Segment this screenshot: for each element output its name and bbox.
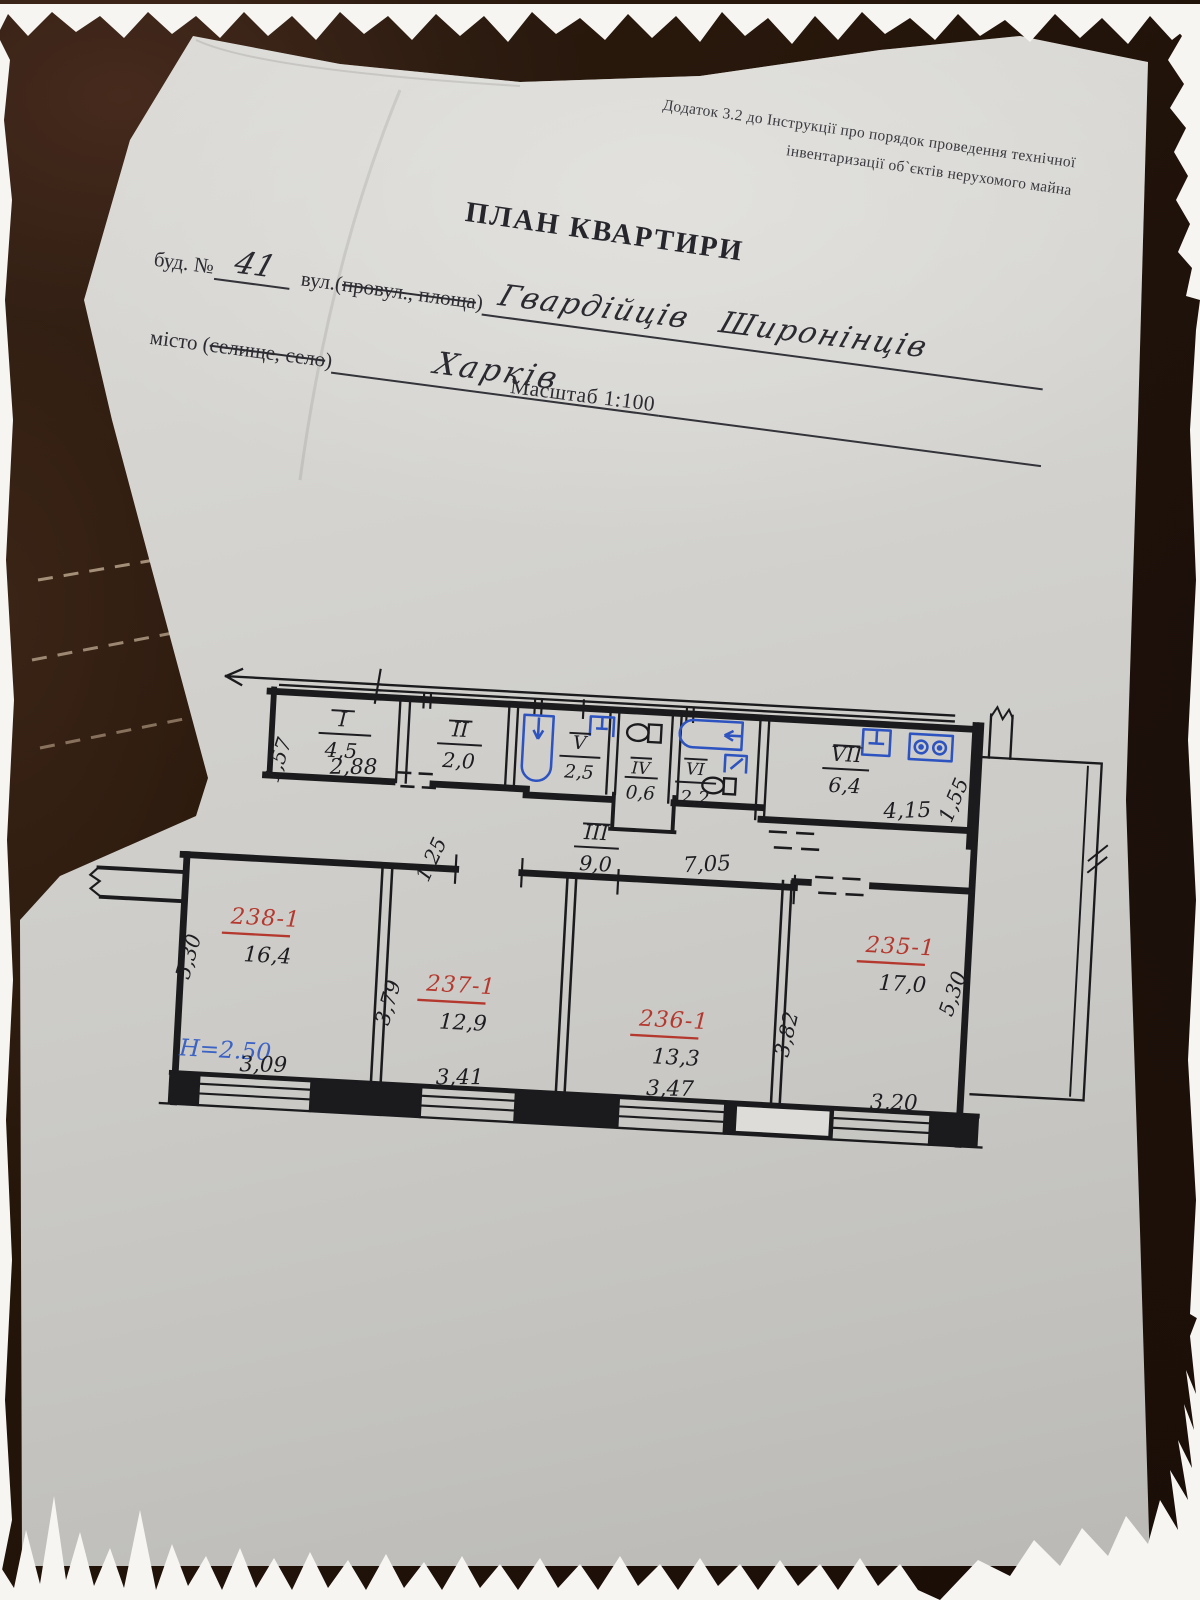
room-235-area: 17,0 [878, 971, 927, 999]
dim-r235-width: 3,20 [870, 1090, 918, 1116]
room-238-number: 238-1 [229, 903, 301, 933]
dim-kitchen-width: 4,15 [882, 798, 932, 825]
sink-icon [724, 755, 746, 774]
plan-room-labels: I 4,5 II 2,0 V 2,5 IV 0,6 VI 2,2 VII 6,4… [178, 699, 947, 1101]
dim-room-i-width: 2,88 [329, 755, 378, 780]
room-237-area: 12,9 [438, 1009, 487, 1037]
dim-corridor-width: 7,05 [683, 851, 732, 878]
room-III-area: 9,0 [579, 851, 613, 877]
room-V-area: 2,5 [563, 761, 595, 784]
room-IV-number: IV [630, 758, 653, 778]
dim-r238-depth: 5,30 [171, 931, 207, 981]
balcony-outline [961, 706, 1114, 1101]
room-236-number: 236-1 [638, 1005, 710, 1035]
dim-r237-width: 3,41 [436, 1065, 484, 1090]
stove-icon [909, 734, 953, 762]
room-IV-area: 0,6 [625, 782, 656, 805]
room-I-number: I [337, 707, 348, 732]
room-II-number: II [451, 717, 470, 742]
bathtub-icon [521, 715, 554, 782]
dim-r238-width: 3,09 [239, 1052, 287, 1078]
street-label-prefix: вул.( [299, 266, 343, 296]
room-V-number: V [572, 733, 588, 755]
dim-corridor-left: 1,25 [411, 834, 452, 885]
dim-r236-width: 3,47 [646, 1076, 695, 1102]
room-VII-number: VII [830, 742, 863, 768]
room-235-number: 235-1 [864, 932, 936, 962]
room-236-area: 13,3 [651, 1044, 700, 1072]
floor-plan: I 4,5 II 2,0 V 2,5 IV 0,6 VI 2,2 VII 6,4… [56, 648, 1164, 1246]
room-238-area: 16,4 [243, 942, 292, 970]
room-II-area: 2,0 [441, 748, 476, 774]
room-237-number: 237-1 [425, 971, 497, 1001]
room-VII-area: 6,4 [828, 773, 862, 799]
room-III-number: III [583, 820, 610, 845]
kitchen-sink-icon [862, 729, 891, 756]
toilet-icon [627, 723, 662, 742]
bathtub-icon [679, 719, 743, 750]
photographed-document: Додаток 3.2 до Інструкції про порядок пр… [0, 0, 1200, 1600]
room-VI-area: 2,2 [679, 787, 711, 810]
balcony-door [734, 1105, 831, 1137]
room-VI-number: VI [686, 759, 706, 779]
